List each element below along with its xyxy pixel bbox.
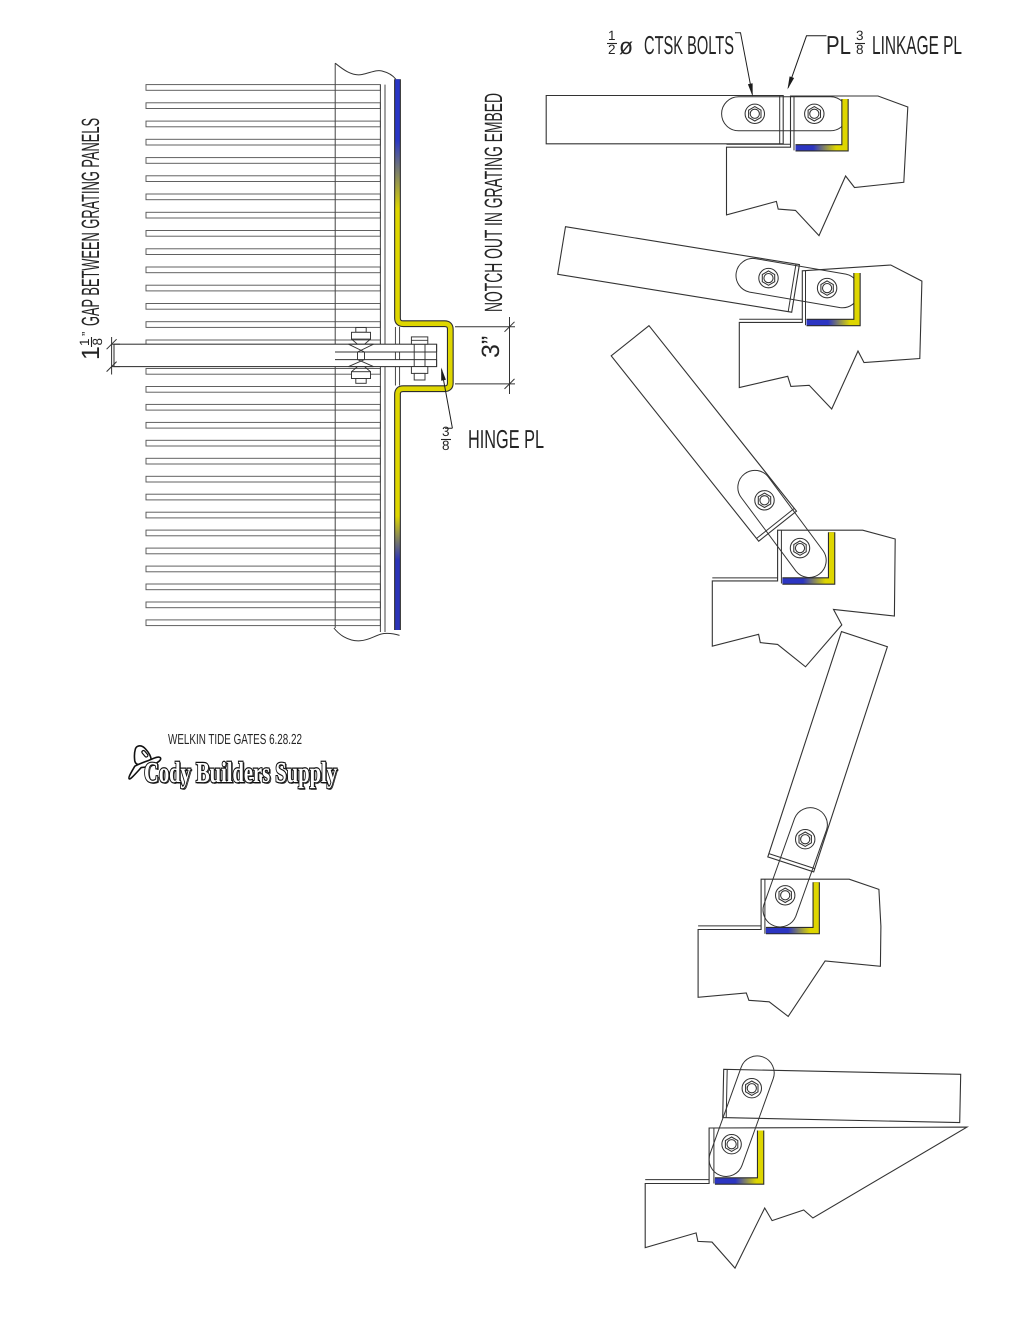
svg-text:2: 2 [608,42,616,57]
svg-text:PL: PL [826,30,851,60]
svg-text:LINKAGE PL: LINKAGE PL [872,30,962,60]
svg-text:3: 3 [856,28,864,43]
svg-text:8: 8 [856,42,864,57]
svg-text:NOTCH OUT IN GRATING EMBED: NOTCH OUT IN GRATING EMBED [480,93,508,312]
svg-text:”: ” [79,332,94,336]
svg-text:1: 1 [77,346,105,360]
svg-text:WELKIN TIDE GATES 6.28.22: WELKIN TIDE GATES 6.28.22 [168,732,302,748]
svg-text:HINGE PL: HINGE PL [468,424,544,454]
svg-text:CTSK BOLTS: CTSK BOLTS [644,30,734,60]
svg-text:ø: ø [619,33,633,59]
svg-text:1: 1 [608,28,616,43]
svg-text:3”: 3” [477,336,505,358]
svg-text:Cody Builders Supply: Cody Builders Supply [144,757,337,789]
svg-text:8: 8 [90,338,105,346]
svg-text:GAP BETWEEN GRATING PANELS: GAP BETWEEN GRATING PANELS [77,118,105,326]
svg-text:3: 3 [442,424,450,439]
svg-text:8: 8 [442,438,450,453]
